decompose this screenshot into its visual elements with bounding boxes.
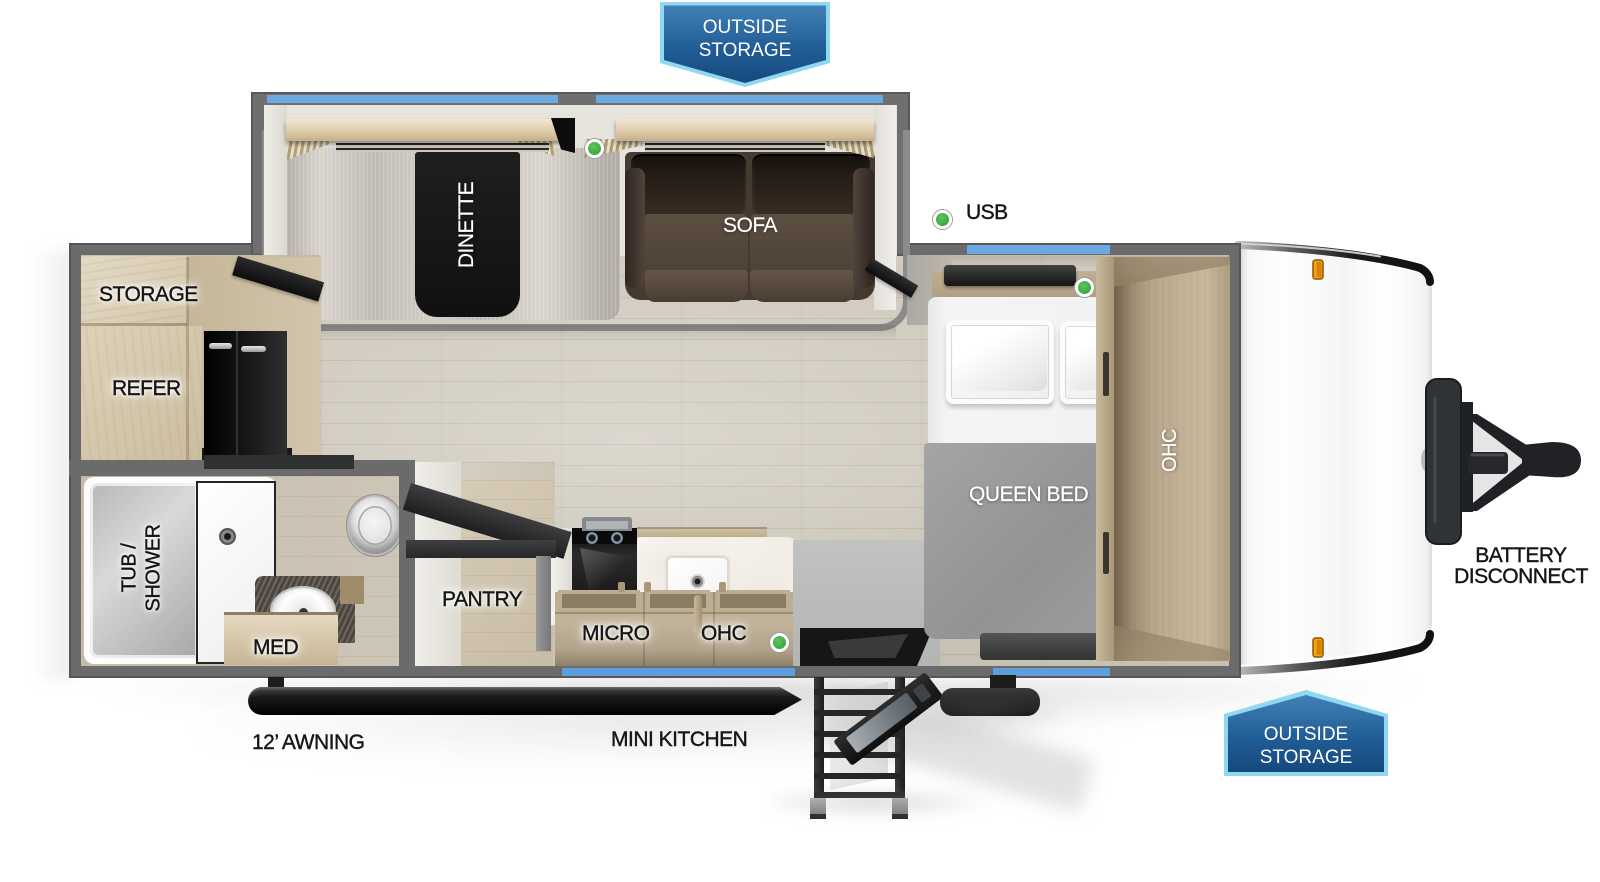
svg-text:STORAGE: STORAGE	[699, 40, 792, 61]
svg-text:OUTSIDE: OUTSIDE	[1264, 724, 1348, 745]
svg-text:STORAGE: STORAGE	[1260, 747, 1353, 768]
svg-text:OUTSIDE: OUTSIDE	[703, 17, 787, 38]
